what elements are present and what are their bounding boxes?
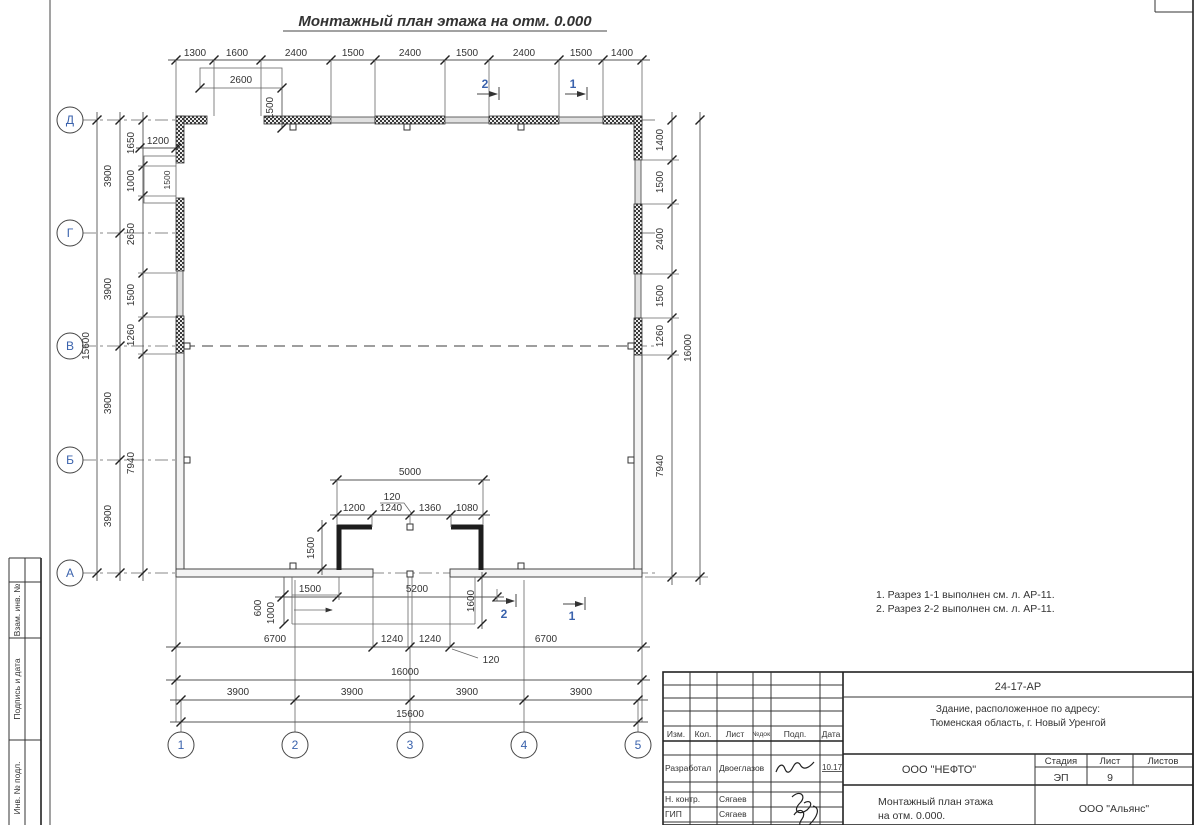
- axis-row-label: В: [66, 339, 74, 353]
- dim-label: 1400: [611, 48, 634, 59]
- vestibule: 5000 120 1200 1240 1360 1080 1500: [306, 467, 490, 577]
- dim-label: 1500: [655, 284, 666, 307]
- stamp-role: Разработал: [665, 763, 711, 773]
- dim-label: 2400: [285, 48, 308, 59]
- signature-squiggle: [792, 793, 817, 825]
- dim-label: 2650: [126, 222, 137, 245]
- dim-label: 1200: [343, 503, 366, 514]
- object-name: Тюменская область, г. Новый Уренгой: [930, 717, 1106, 729]
- dim-label: 1300: [184, 48, 207, 59]
- dim-label: 1650: [126, 131, 137, 154]
- dim-label: 3900: [103, 164, 114, 187]
- sheet-value: 9: [1107, 772, 1113, 784]
- title-block: Изм. Кол. Лист №док. Подп. Дата Разработ…: [663, 672, 1193, 825]
- axis-col-label: 2: [292, 738, 299, 752]
- dim-label: 1500: [299, 584, 322, 595]
- margin-cell-label: Взам. инв. №: [12, 584, 22, 637]
- dim-label: 600: [253, 599, 264, 616]
- dim-label: 1500: [570, 48, 593, 59]
- stamp-col-header: Кол.: [695, 729, 712, 739]
- dim-label: 1500: [342, 48, 365, 59]
- dim-label: 16000: [683, 334, 694, 362]
- stamp-col-header: Подп.: [784, 729, 807, 739]
- margin-strip: Взам. инв. № Подпись и дата Инв. № подл.: [9, 558, 41, 825]
- section-label: 2: [482, 77, 489, 91]
- dim-label: 3900: [341, 687, 364, 698]
- dim-label: 1600: [466, 589, 477, 612]
- porch: 1500 5200 600 1000 1600: [253, 572, 504, 629]
- object-name: Здание, расположенное по адресу:: [936, 704, 1100, 715]
- dim-label: 7940: [126, 451, 137, 474]
- stamp-col-header: Изм.: [667, 729, 685, 739]
- page-title: Монтажный план этажа на отм. 0.000: [298, 13, 592, 30]
- section-label: 1: [570, 77, 577, 91]
- note-line: 2. Разрез 2-2 выполнен см. л. АР-11.: [876, 603, 1055, 615]
- section-marker-2-top: 2: [477, 77, 499, 100]
- doc-number: 24-17-АР: [995, 681, 1041, 693]
- dim-label: 1080: [456, 503, 479, 514]
- dim-label: 5000: [399, 467, 422, 478]
- stamp-col-header: №док.: [752, 731, 772, 738]
- axis-col-label: 3: [407, 738, 414, 752]
- floor-plan-svg: Взам. инв. № Подпись и дата Инв. № подл.…: [0, 0, 1200, 825]
- dim-label: 3900: [570, 687, 593, 698]
- signature-squiggle: [776, 762, 814, 772]
- stamp-name: Двоеглазов: [719, 763, 765, 773]
- axis-bubbles-left: Д Г В Б А: [57, 107, 83, 586]
- stamp-col-header: Лист: [726, 729, 745, 739]
- dim-label: 15600: [396, 709, 424, 720]
- dim-label: 3900: [103, 391, 114, 414]
- dim-label: 3900: [227, 687, 250, 698]
- section-markers: 2 1 2 1: [477, 77, 587, 623]
- dim-label: 120: [384, 492, 401, 503]
- dim-label: 1000: [126, 169, 137, 192]
- dim-label: 1500: [306, 536, 317, 559]
- margin-cell-label: Подпись и дата: [12, 658, 22, 719]
- dim-label: 1500: [126, 283, 137, 306]
- dim-label: 1000: [266, 601, 277, 624]
- dim-label: 1400: [655, 128, 666, 151]
- dim-label: 1500: [456, 48, 479, 59]
- axis-row-label: А: [66, 566, 74, 580]
- dim-label: 2400: [513, 48, 536, 59]
- dim-label: 1200: [147, 136, 170, 147]
- dim-label: 3900: [456, 687, 479, 698]
- dim-label: 5200: [406, 584, 429, 595]
- dim-label: 1500: [655, 170, 666, 193]
- plan-title: Монтажный план этажа на отм. 0.000: [283, 13, 607, 31]
- section-label: 2: [501, 607, 508, 621]
- stamp-name: Сягаев: [719, 809, 747, 819]
- axis-bubbles-bottom: 1 2 3 4 5: [168, 732, 651, 758]
- sheet-label: Лист: [1100, 756, 1121, 767]
- axis-col-label: 1: [178, 738, 185, 752]
- dim-label: 120: [483, 655, 500, 666]
- stage-value: ЭП: [1053, 772, 1068, 784]
- note-line: 1. Разрез 1-1 выполнен см. л. АР-11.: [876, 589, 1055, 601]
- dim-label: 1260: [126, 323, 137, 346]
- axis-row-label: Б: [66, 453, 74, 467]
- sheets-label: Листов: [1148, 756, 1179, 767]
- axis-row-label: Г: [67, 226, 74, 240]
- dim-label: 1240: [381, 634, 404, 645]
- section-label: 1: [569, 609, 576, 623]
- dim-label: 6700: [535, 634, 558, 645]
- dim-label: 7940: [655, 454, 666, 477]
- stamp-role: ГИП: [665, 809, 682, 819]
- sheet-title: на отм. 0.000.: [878, 810, 945, 822]
- notes: 1. Разрез 1-1 выполнен см. л. АР-11. 2. …: [876, 589, 1055, 615]
- stamp-date: 10.17: [822, 763, 843, 772]
- dim-label: 2400: [399, 48, 422, 59]
- dim-label: 3900: [103, 277, 114, 300]
- stage-label: Стадия: [1045, 756, 1077, 767]
- axis-col-label: 4: [521, 738, 528, 752]
- dim-label: 1600: [226, 48, 249, 59]
- dim-label: 2600: [230, 75, 253, 86]
- section-marker-1-top: 1: [565, 77, 587, 100]
- dims-bottom: 6700 1240 1240 6700 120 16000 3900 3900 …: [166, 577, 650, 732]
- org-name: ООО "НЕФТО": [902, 764, 976, 776]
- drawing-sheet: Взам. инв. № Подпись и дата Инв. № подл.…: [0, 0, 1200, 825]
- stamp-name: Сягаев: [719, 794, 747, 804]
- dim-label: 3900: [103, 504, 114, 527]
- section-marker-1-bottom: 1: [563, 597, 585, 623]
- dim-label: 1500: [162, 170, 172, 189]
- stamp-col-header: Дата: [822, 729, 841, 739]
- dim-label: 1500: [265, 96, 276, 119]
- dim-label: 6700: [264, 634, 287, 645]
- dim-label: 1240: [419, 634, 442, 645]
- sheet-title: Монтажный план этажа: [878, 796, 993, 808]
- axis-row-label: Д: [66, 113, 74, 127]
- dim-label: 16000: [391, 667, 419, 678]
- dim-label: 1260: [655, 324, 666, 347]
- dims-right: 1400 1500 2400 1500 1260 7940 16000: [642, 112, 708, 585]
- dim-label: 1360: [419, 503, 442, 514]
- dim-label: 2400: [655, 227, 666, 250]
- margin-cell-label: Инв. № подл.: [12, 762, 22, 815]
- firm-name: ООО "Альянс": [1079, 803, 1149, 815]
- axis-col-label: 5: [635, 738, 642, 752]
- dim-label: 1240: [380, 503, 403, 514]
- stamp-role: Н. контр.: [665, 794, 700, 804]
